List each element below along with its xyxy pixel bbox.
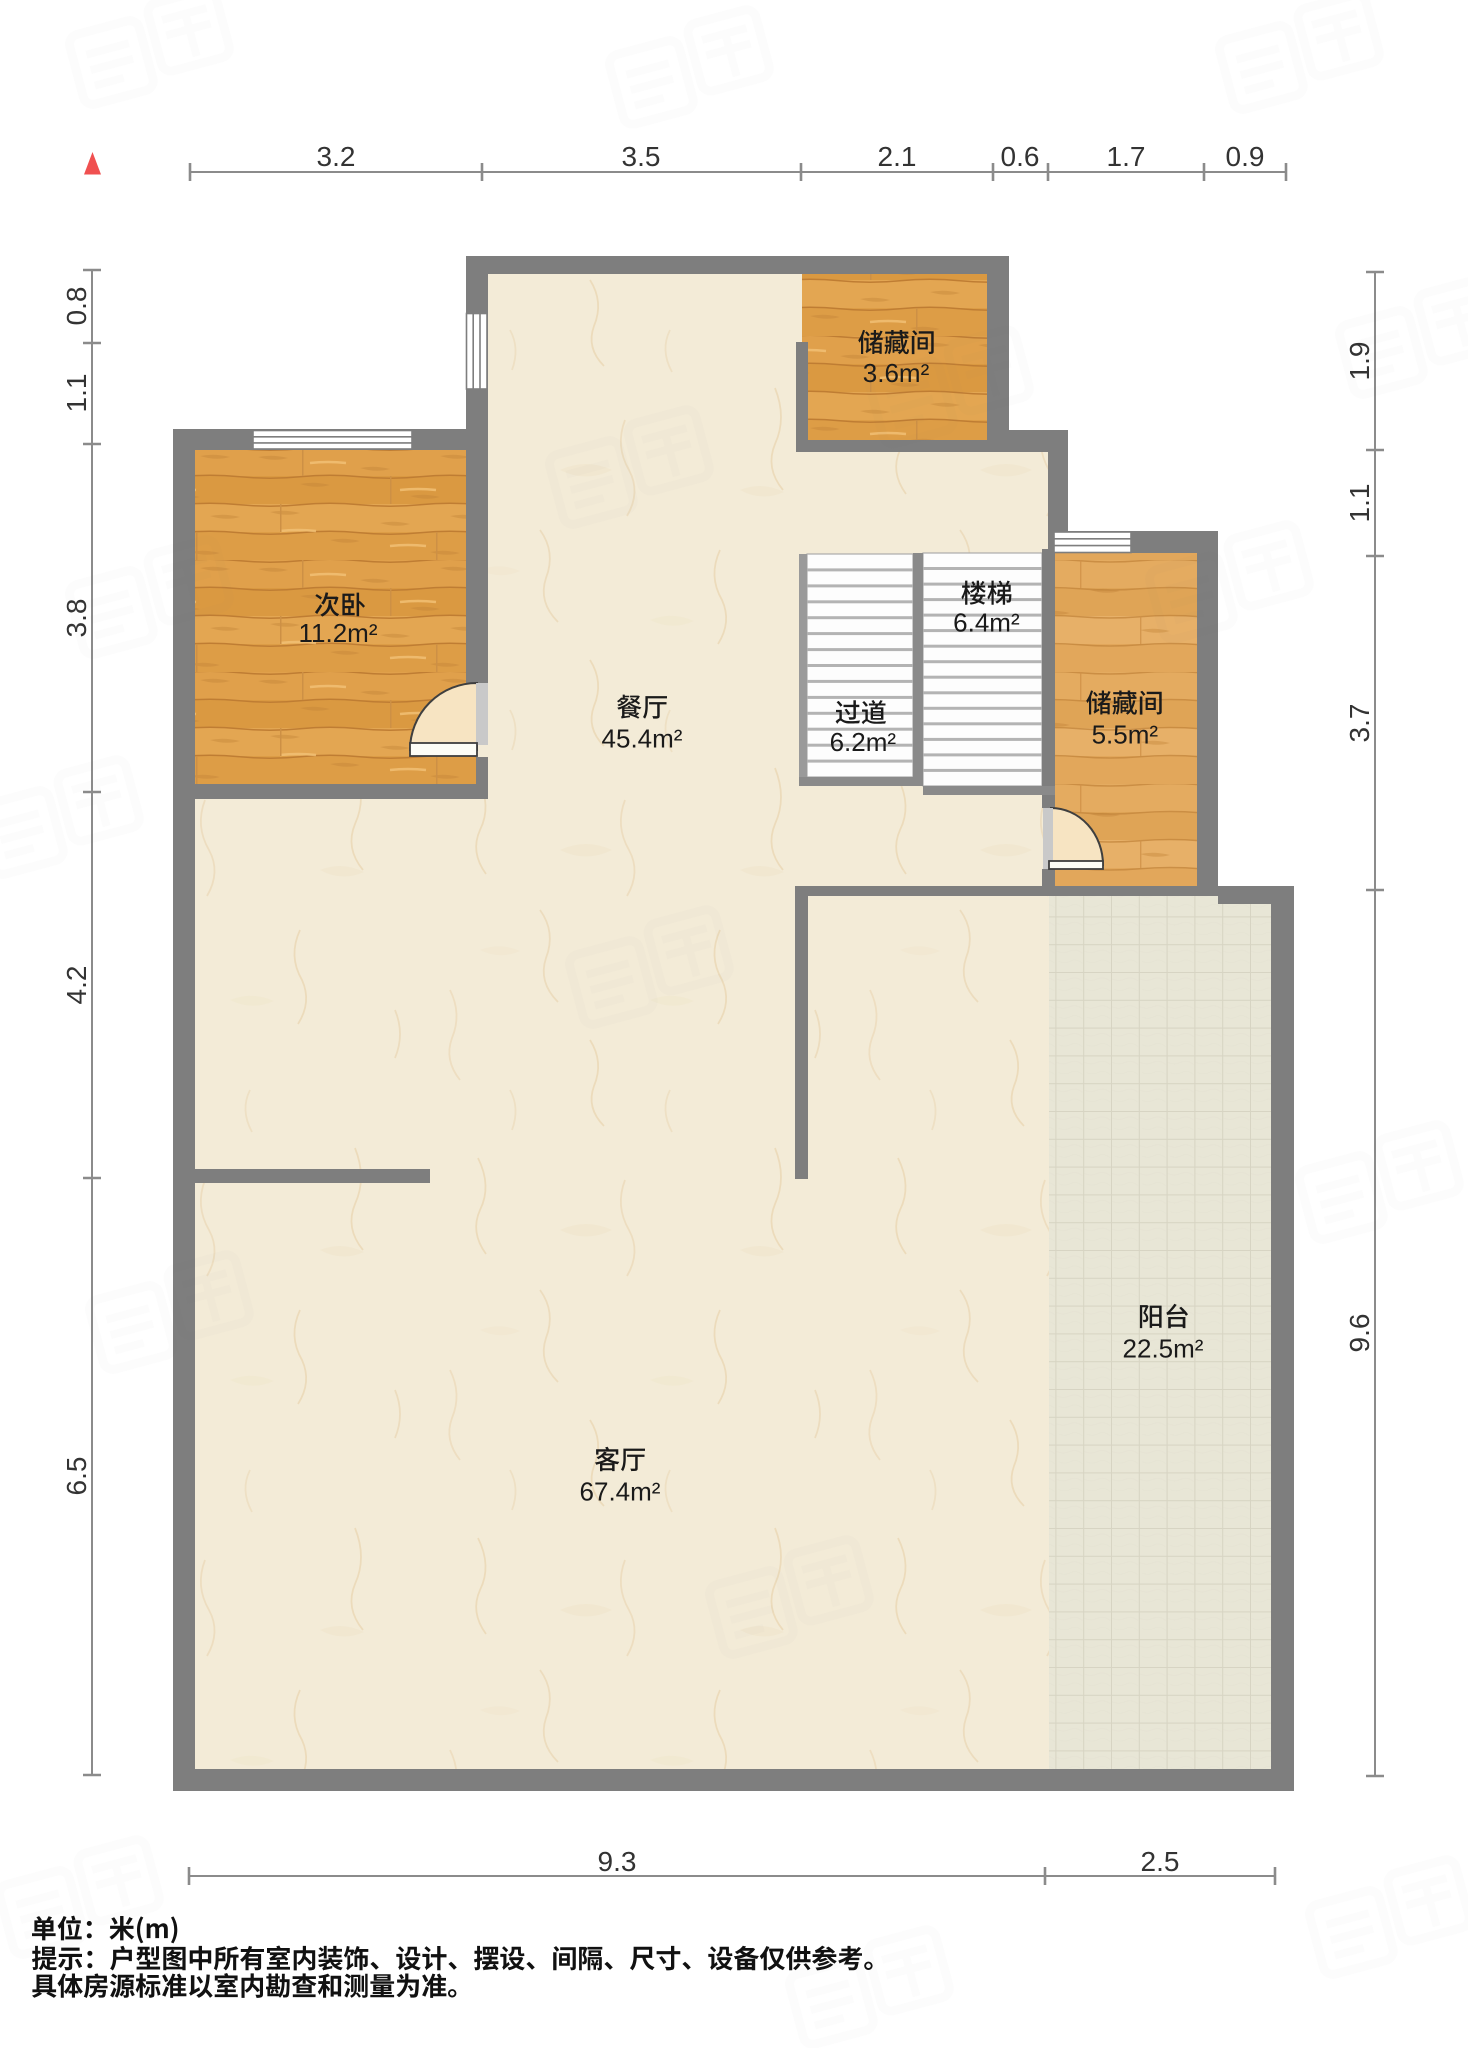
- svg-text:1.7: 1.7: [1107, 141, 1146, 172]
- svg-text:45.4m²: 45.4m²: [602, 724, 683, 754]
- svg-text:6.2m²: 6.2m²: [830, 727, 897, 757]
- svg-text:6.4m²: 6.4m²: [953, 608, 1020, 638]
- svg-text:5.5m²: 5.5m²: [1092, 720, 1159, 750]
- svg-text:1.1: 1.1: [1344, 484, 1375, 523]
- svg-text:3.5: 3.5: [622, 141, 661, 172]
- svg-text:2.5: 2.5: [1141, 1846, 1180, 1877]
- svg-text:22.5m²: 22.5m²: [1123, 1334, 1204, 1364]
- svg-text:4.2: 4.2: [61, 966, 92, 1005]
- svg-text:0.8: 0.8: [61, 287, 92, 326]
- svg-text:0.9: 0.9: [1226, 141, 1265, 172]
- svg-text:6.5: 6.5: [61, 1457, 92, 1496]
- svg-text:9.3: 9.3: [598, 1846, 637, 1877]
- svg-text:3.2: 3.2: [317, 141, 356, 172]
- svg-text:0.6: 0.6: [1001, 141, 1040, 172]
- svg-text:11.2m²: 11.2m²: [299, 618, 378, 648]
- svg-text:2.1: 2.1: [878, 141, 917, 172]
- svg-text:9.6: 9.6: [1344, 1314, 1375, 1353]
- svg-text:1.1: 1.1: [61, 374, 92, 413]
- svg-text:67.4m²: 67.4m²: [580, 1477, 661, 1507]
- svg-text:3.7: 3.7: [1344, 704, 1375, 743]
